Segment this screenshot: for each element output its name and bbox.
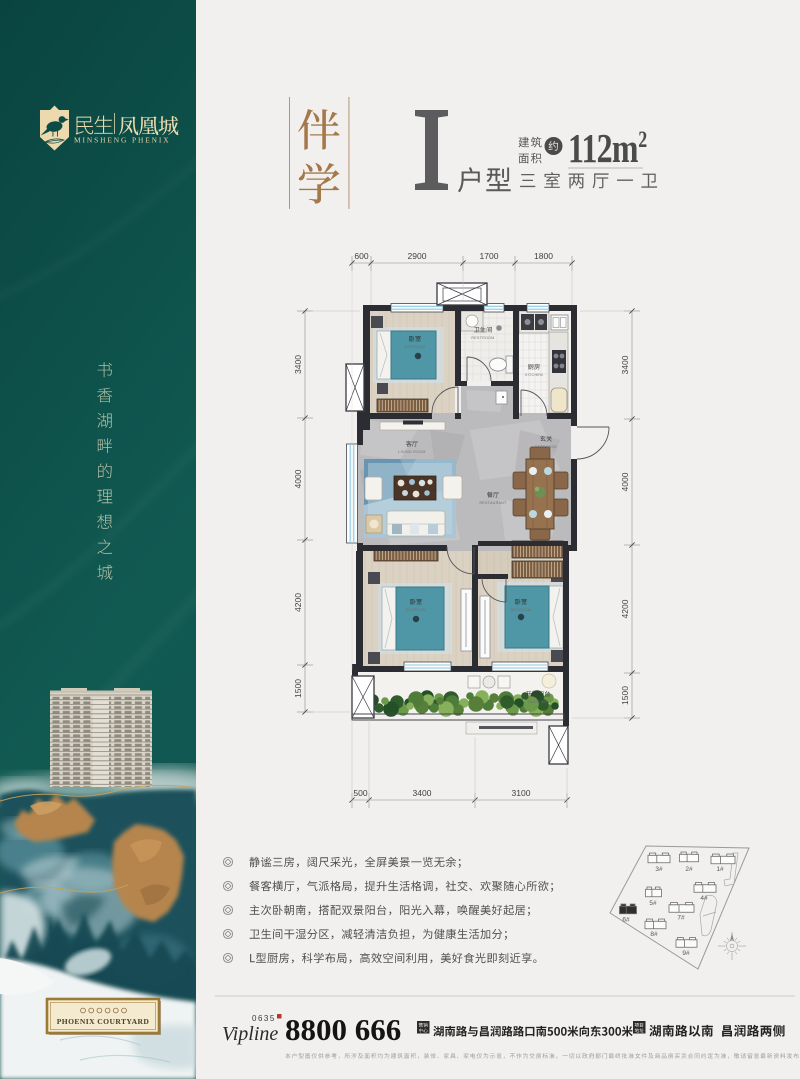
svg-text:1500: 1500 [293,679,303,698]
svg-text:4200: 4200 [620,599,630,618]
svg-text:3100: 3100 [512,788,531,798]
svg-text:BALCONY: BALCONY [528,700,548,704]
svg-text:MINSHENG PHENIX: MINSHENG PHENIX [74,136,170,145]
svg-text:RESTROOM: RESTROOM [471,336,494,340]
svg-text:2: 2 [638,128,647,153]
svg-text:3400: 3400 [620,355,630,374]
svg-text:PHOENIX COURTYARD: PHOENIX COURTYARD [57,1017,150,1026]
svg-text:0635: 0635 [252,1014,276,1023]
svg-text:500: 500 [353,788,367,798]
svg-text:4000: 4000 [620,472,630,491]
svg-text:BEDROOM: BEDROOM [511,608,532,612]
svg-text:2900: 2900 [408,251,427,261]
svg-text:8800 666: 8800 666 [285,1012,401,1047]
svg-text:BEDROOM: BEDROOM [405,345,426,349]
svg-text:BEDROOM: BEDROOM [406,608,427,612]
svg-text:1800: 1800 [534,251,553,261]
svg-text:8#: 8# [650,931,658,938]
svg-text:2#: 2# [685,866,693,873]
svg-text:1#: 1# [716,866,724,873]
svg-text:Vipline: Vipline [222,1023,278,1045]
svg-text:6#: 6# [622,917,630,924]
svg-text:4#: 4# [700,895,708,902]
svg-text:4200: 4200 [293,593,303,612]
svg-text:1700: 1700 [480,251,499,261]
svg-text:5#: 5# [649,900,657,907]
svg-text:9#: 9# [682,950,690,957]
svg-text:3400: 3400 [413,788,432,798]
svg-text:ENTRANCE: ENTRANCE [535,445,557,449]
svg-text:4000: 4000 [293,469,303,488]
svg-text:1500: 1500 [620,686,630,705]
svg-text:112m: 112m [568,125,638,171]
svg-text:3400: 3400 [293,355,303,374]
svg-text:7#: 7# [677,915,685,922]
svg-text:LIVING ROOM: LIVING ROOM [398,450,425,454]
svg-text:3#: 3# [655,866,663,873]
svg-text:RESTAURANT: RESTAURANT [479,501,507,505]
svg-text:600: 600 [354,251,368,261]
svg-text:KITCHEN: KITCHEN [525,373,543,377]
